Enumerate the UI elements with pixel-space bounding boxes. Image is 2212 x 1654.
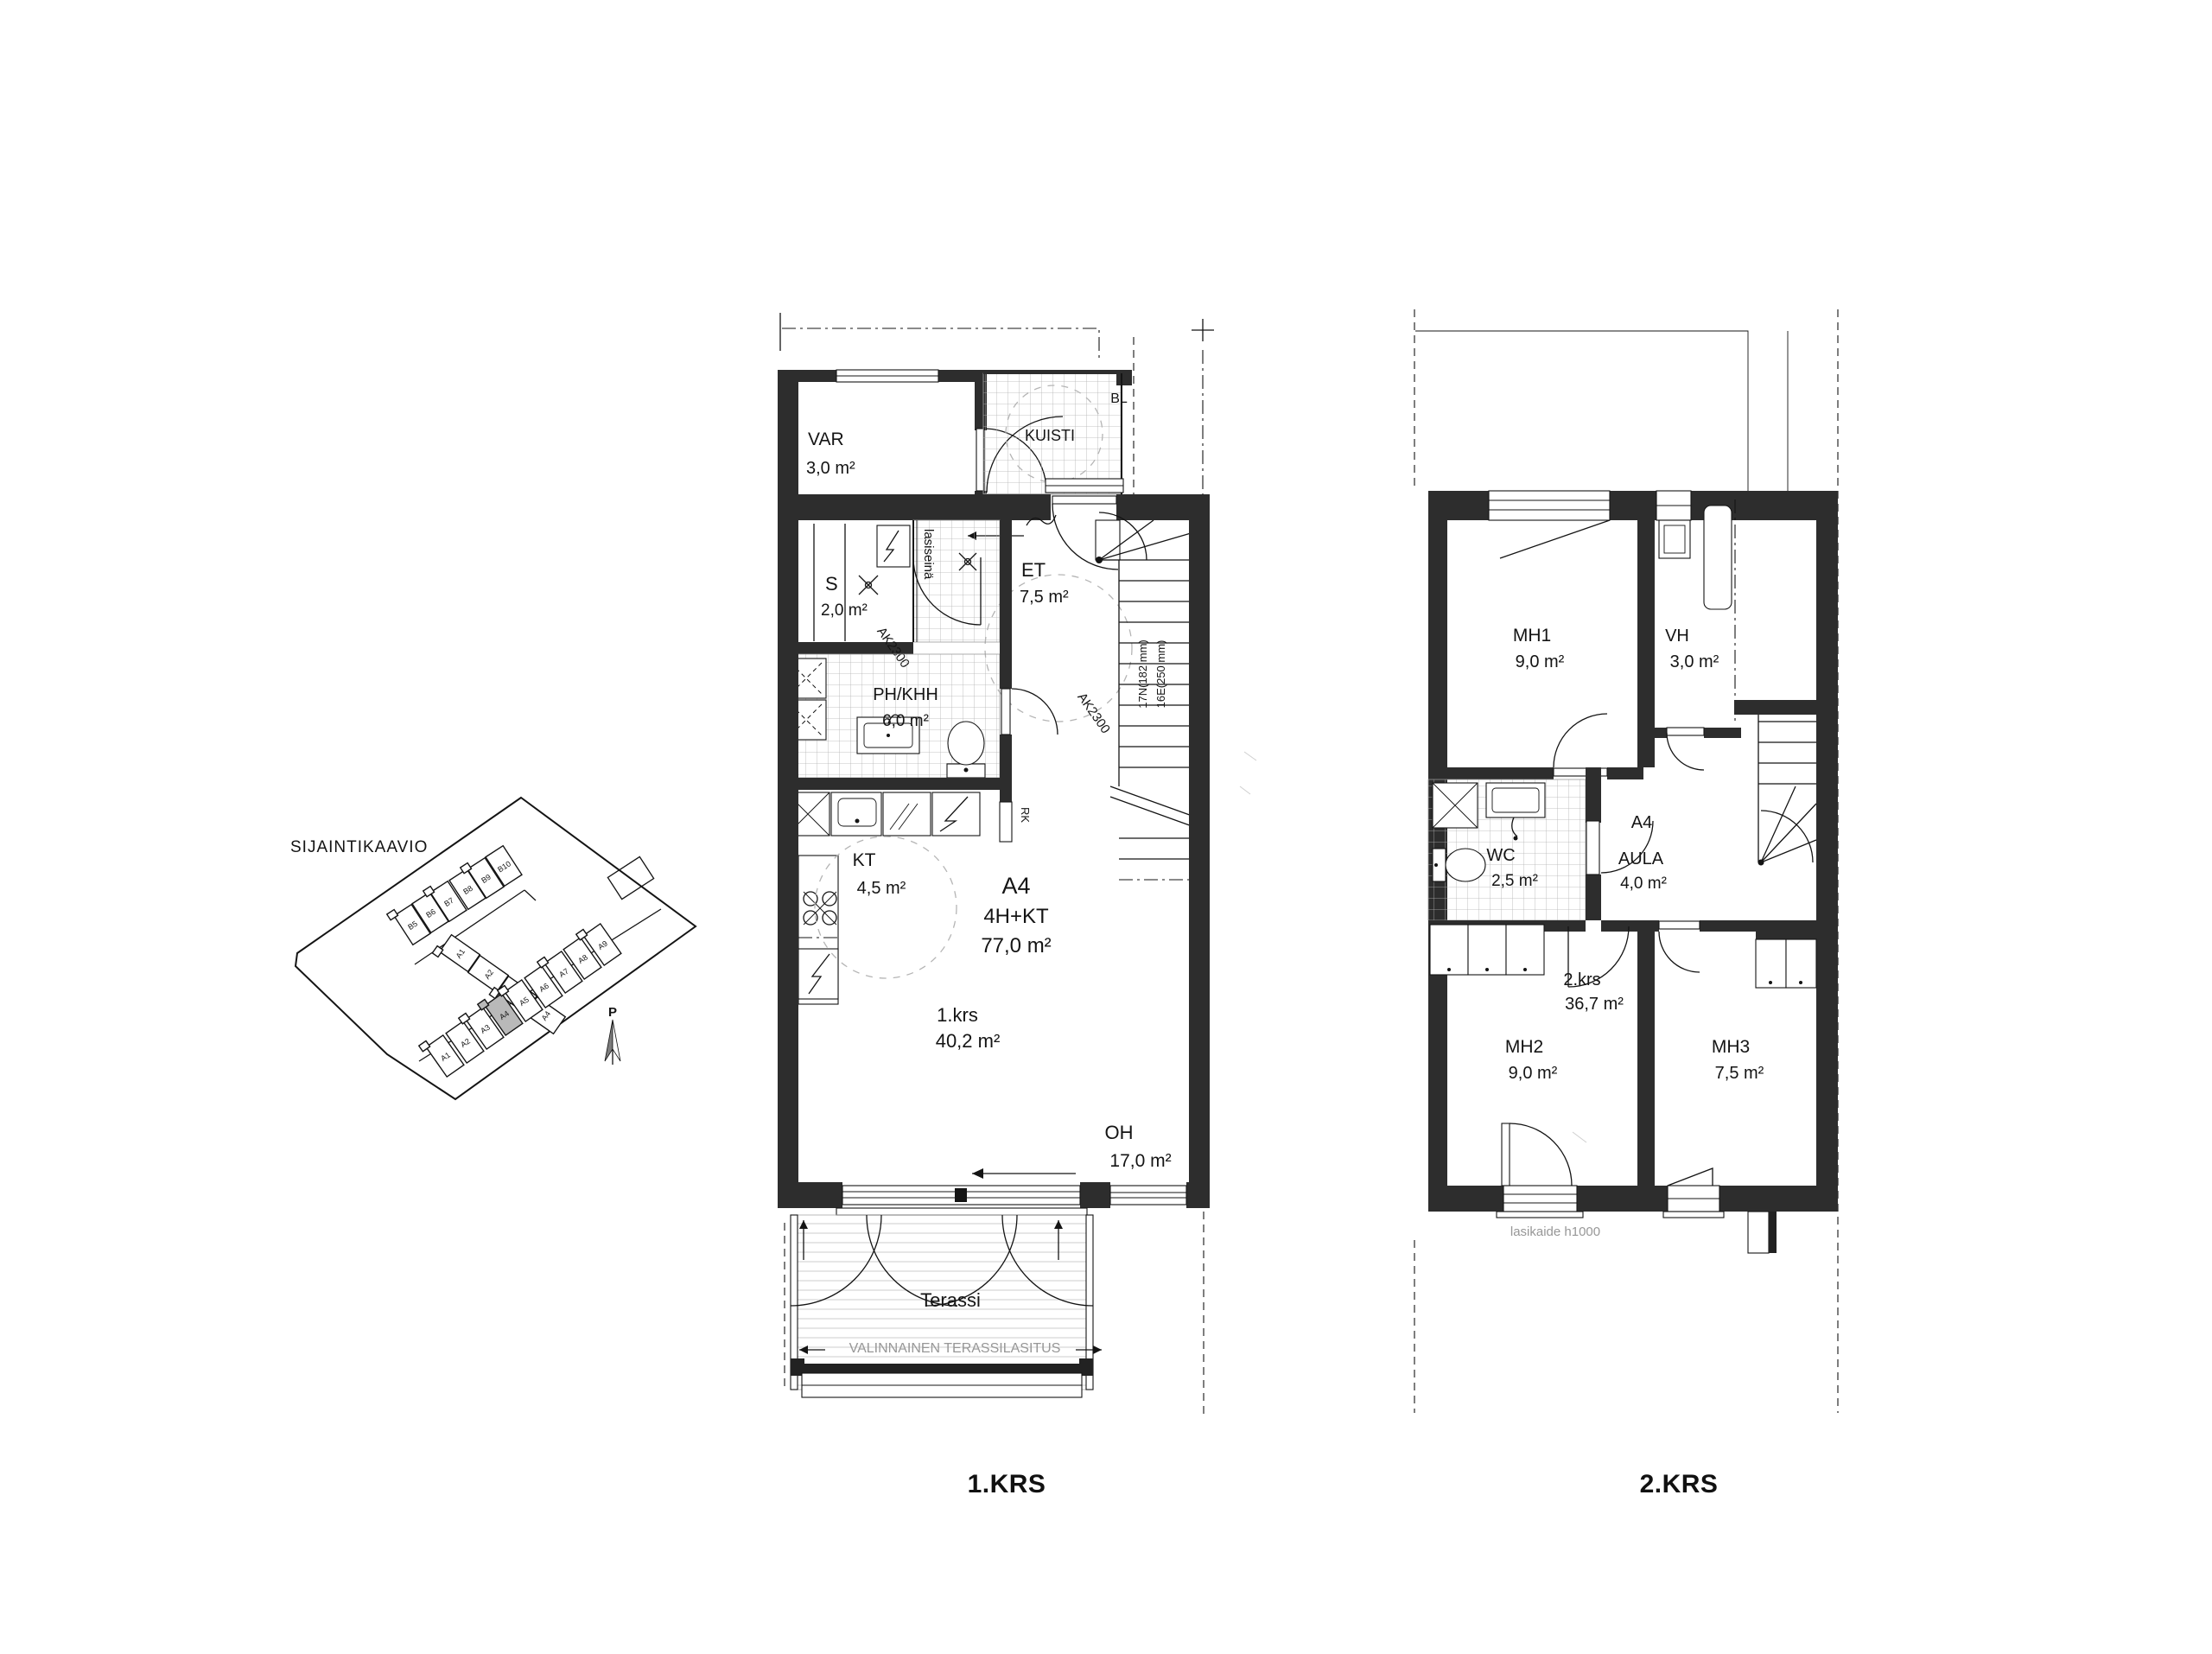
site-location-diagram: SIJAINTIKAAVIO B5 B6 B7 B8 B9 B10 A1 A2 …: [276, 795, 709, 1132]
room-wc-area: 2,5 m²: [1491, 872, 1538, 890]
room-et-label: ET: [1021, 559, 1046, 581]
interior-wall: [1700, 920, 1758, 932]
ph-door-arc: [1001, 689, 1058, 735]
var-window: [836, 370, 938, 382]
room-oh: OH 17,0 m²: [1105, 752, 1257, 1171]
level-area-floor1: 1.krs 40,2 m²: [936, 1004, 1001, 1052]
terrace-rail: [791, 1364, 1093, 1373]
vh-cabinet: [1704, 506, 1732, 609]
toilet-icon: [947, 722, 985, 778]
shower-icon: [859, 576, 878, 595]
stairs: 17N(182 mm) 16E(250 mm): [1096, 512, 1197, 880]
window: [1668, 1168, 1719, 1212]
mh2-closets: [1430, 925, 1544, 975]
room-kuisti: KUISTI BL: [983, 370, 1132, 494]
sliding-door-arrow: [972, 1168, 1076, 1179]
dishwasher-icon: [883, 792, 931, 836]
apartment-summary: A4 4H+KT 77,0 m²: [981, 873, 1051, 957]
floor1-plan: VAR 3,0 m² KUISTI BL ET 7,5 m²: [760, 302, 1296, 1452]
level1-name: 1.krs: [937, 1004, 978, 1026]
site-title: SIJAINTIKAAVIO: [290, 838, 428, 856]
sliding-glass-door: [842, 1186, 1080, 1205]
stair-risers-note: 17N(182 mm): [1136, 639, 1149, 708]
mh3-door-arc: [1659, 921, 1700, 972]
room-oh-area: 17,0 m²: [1109, 1151, 1171, 1171]
ak-annotation-et: AK2300: [1074, 690, 1113, 736]
level2-area: 36,7 m²: [1565, 995, 1624, 1014]
room-var-label: VAR: [808, 429, 844, 449]
room-var-area: 3,0 m²: [806, 459, 855, 478]
room-sauna-label: S: [825, 573, 838, 595]
sauna-heater-icon: [877, 525, 910, 567]
room-wc: WC 2,5 m²: [1428, 767, 1653, 920]
room-kt-label: KT: [853, 850, 876, 870]
room-sauna-area: 2,0 m²: [821, 601, 868, 620]
room-kuisti-label: KUISTI: [1025, 427, 1075, 444]
terrace: Terassi VALINNAINEN TERASSILASITUS: [785, 1215, 1102, 1397]
room-vh-label: VH: [1665, 627, 1689, 646]
room-ph-khh: PH/KHH 6,0 m²: [782, 654, 1000, 790]
stairs: [1734, 700, 1816, 866]
svg-text:P: P: [608, 1005, 617, 1020]
kitchen-sink-icon: [831, 792, 881, 836]
room-mh3-area: 7,5 m²: [1715, 1064, 1764, 1083]
room-mh2-label: MH2: [1505, 1037, 1543, 1057]
outer-wall-right: [1816, 491, 1838, 1212]
north-arrow-icon: P: [605, 1005, 620, 1065]
apartment-area: 77,0 m²: [981, 934, 1051, 957]
terrace-glazing-note: VALINNAINEN TERASSILASITUS: [849, 1341, 1061, 1356]
balcony-door: [1502, 1123, 1577, 1212]
toilet-icon: [1433, 849, 1485, 881]
rk-cabinet: [1000, 802, 1012, 842]
room-aula: A4 AULA 4,0 m²: [1618, 813, 1667, 893]
mh1-door-arc: [1554, 714, 1607, 776]
interior-wall: [1637, 920, 1655, 1212]
mh1-window: [1489, 491, 1610, 520]
apartment-unit: A4: [1001, 873, 1030, 899]
room-terassi-label: Terassi: [920, 1289, 981, 1311]
bottom-right-step: [1748, 1212, 1777, 1253]
floor2-caption: 2.KRS: [1640, 1470, 1719, 1499]
appliance-icon: [932, 792, 980, 836]
room-mh1-area: 9,0 m²: [1516, 652, 1565, 671]
outer-wall-right: [1189, 520, 1210, 1186]
bl-annotation: BL: [1110, 391, 1128, 406]
room-mh3: MH3 7,5 m²: [1573, 1037, 1764, 1142]
floor2-unit-tag: A4: [1631, 813, 1652, 832]
room-mh2: MH2 9,0 m²: [1505, 1037, 1558, 1083]
room-aula-label: AULA: [1618, 849, 1664, 868]
room-mh2-area: 9,0 m²: [1509, 1064, 1558, 1083]
floor2-plan: MH1 9,0 m² VH 3,0 m²: [1400, 302, 1884, 1452]
room-mh1-label: MH1: [1513, 626, 1551, 646]
fridge-icon: [798, 949, 838, 999]
room-ph-label: PH/KHH: [873, 685, 938, 704]
north-wall: [1428, 491, 1823, 558]
mh3-closets: [1756, 939, 1816, 988]
room-ph-area: 6,0 m²: [882, 712, 929, 730]
vh-window: [1656, 491, 1691, 558]
room-kt-area: 4,5 m²: [857, 879, 906, 898]
glass-wall-label: lasiseinä: [921, 529, 936, 580]
cabinet-icon: [1433, 783, 1478, 828]
room-aula-area: 4,0 m²: [1620, 875, 1667, 893]
room-mh3-label: MH3: [1712, 1037, 1750, 1057]
level1-area: 40,2 m²: [936, 1030, 1001, 1052]
south-wall: lasikaide h1000: [1428, 1123, 1823, 1253]
window-opening-line: [1500, 520, 1610, 558]
south-wall: [778, 1182, 1210, 1215]
interior-wall: [1756, 920, 1816, 939]
stair-goings-note: 16E(250 mm): [1154, 640, 1167, 709]
site-row-b: B5 B6 B7 B8 B9 B10: [387, 846, 522, 948]
interior-wall: [1637, 491, 1655, 767]
room-mh1: MH1 9,0 m²: [1428, 626, 1643, 779]
vh-door-arc: [1667, 728, 1704, 770]
apartment-type: 4H+KT: [983, 905, 1049, 928]
entry-step: [1046, 479, 1123, 493]
level-area-floor2: 2.krs 36,7 m²: [1563, 970, 1624, 1014]
room-vh-area: 3,0 m²: [1670, 652, 1719, 671]
floor1-caption: 1.KRS: [968, 1470, 1046, 1499]
room-et-area: 7,5 m²: [1020, 588, 1069, 607]
outer-wall-left: [778, 520, 798, 1186]
kitchen-counter: [786, 792, 980, 836]
window: [1110, 1186, 1186, 1205]
railing-note: lasikaide h1000: [1510, 1225, 1600, 1239]
room-wc-label: WC: [1486, 846, 1515, 865]
rk-label: RK: [1019, 807, 1032, 823]
room-oh-label: OH: [1105, 1122, 1134, 1143]
